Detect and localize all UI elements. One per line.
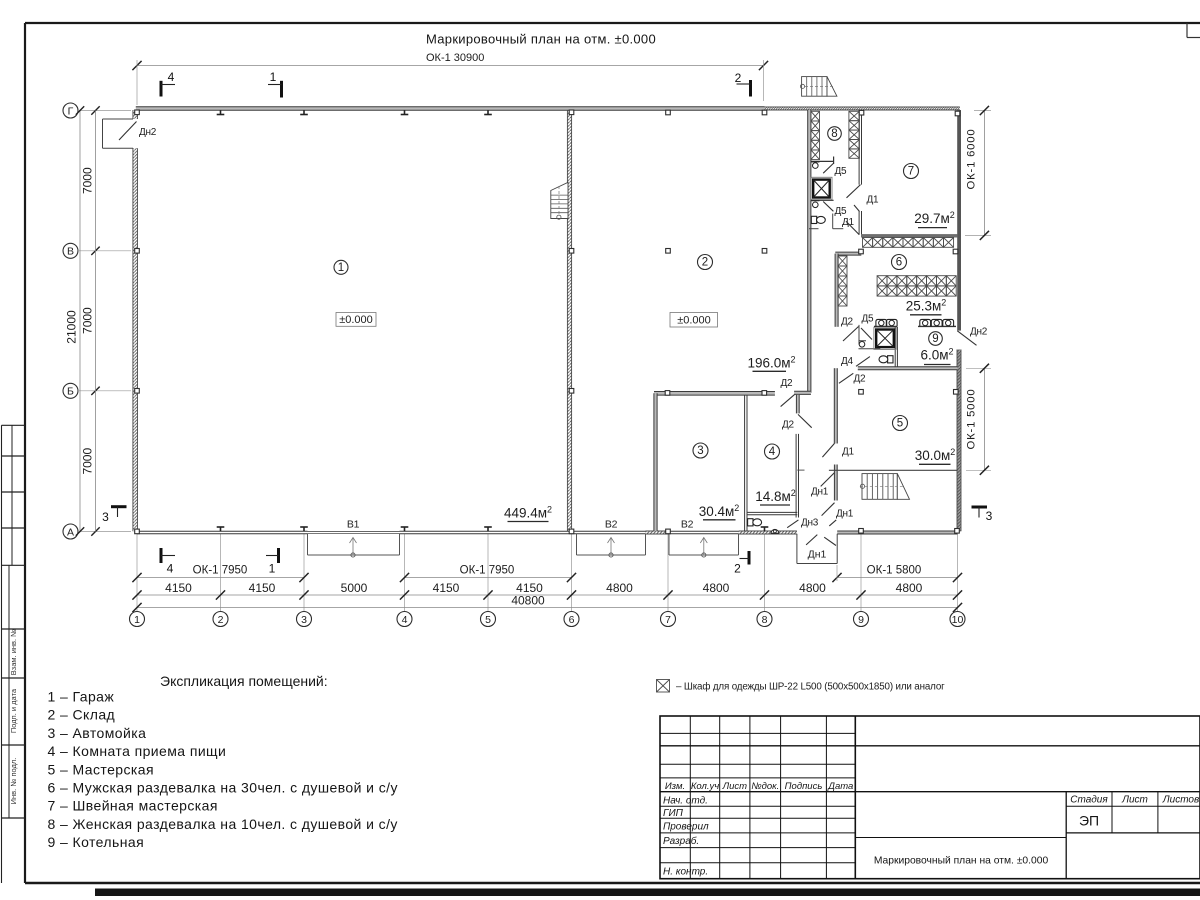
svg-text:7000: 7000 (81, 307, 95, 334)
svg-text:Д1: Д1 (842, 447, 854, 458)
svg-text:2: 2 (218, 614, 224, 626)
svg-text:Д2: Д2 (782, 420, 794, 431)
svg-text:5: 5 (485, 614, 491, 626)
svg-text:Дн2: Дн2 (970, 327, 988, 338)
svg-text:Кол.уч: Кол.уч (691, 781, 719, 792)
svg-text:7000: 7000 (81, 448, 95, 475)
svg-text:449.4м2: 449.4м2 (504, 505, 552, 521)
svg-text:2: 2 (735, 71, 742, 85)
svg-text:ОК-1 5000: ОК-1 5000 (966, 389, 978, 450)
svg-text:±0.000: ±0.000 (339, 314, 373, 326)
svg-text:4: 4 (168, 70, 175, 84)
svg-text:Нач. отд.: Нач. отд. (663, 796, 708, 807)
svg-text:Г: Г (68, 105, 74, 117)
svg-text:ОК-1 5800: ОК-1 5800 (867, 565, 922, 577)
svg-text:8 – Женская раздевалка на 10че: 8 – Женская раздевалка на 10чел. с душев… (48, 816, 398, 832)
svg-text:Д4: Д4 (841, 356, 853, 367)
svg-text:Дн1: Дн1 (836, 509, 854, 520)
svg-text:Дн2: Дн2 (139, 127, 157, 138)
svg-text:ОК-1 30900: ОК-1 30900 (426, 52, 484, 64)
svg-text:Подпись: Подпись (785, 781, 823, 792)
svg-text:3 – Автомойка: 3 – Автомойка (48, 725, 147, 741)
svg-text:Д1: Д1 (842, 217, 854, 228)
svg-text:7: 7 (665, 614, 671, 626)
svg-text:1: 1 (338, 262, 344, 274)
svg-text:Д2: Д2 (841, 317, 853, 328)
svg-text:– Шкаф для одежды ШР-22 L500 (: – Шкаф для одежды ШР-22 L500 (500х500х18… (676, 682, 945, 693)
svg-text:Разраб.: Разраб. (663, 835, 699, 847)
svg-text:Инв. № подл.: Инв. № подл. (9, 758, 18, 805)
svg-text:1: 1 (270, 70, 277, 84)
svg-text:ОК-1 7950: ОК-1 7950 (460, 565, 515, 577)
svg-text:3: 3 (102, 510, 109, 524)
svg-text:3: 3 (986, 509, 993, 523)
svg-text:3: 3 (697, 445, 703, 457)
svg-text:2: 2 (702, 257, 708, 269)
svg-text:4800: 4800 (799, 581, 826, 595)
svg-text:Н. контр.: Н. контр. (663, 867, 708, 878)
svg-text:Дн3: Дн3 (801, 518, 819, 529)
svg-text:3: 3 (301, 614, 307, 626)
svg-text:Лист: Лист (722, 781, 748, 792)
svg-text:1: 1 (134, 614, 140, 626)
svg-text:№док.: №док. (751, 781, 779, 792)
svg-text:Проверил: Проверил (663, 822, 709, 833)
svg-text:Дн1: Дн1 (811, 487, 829, 498)
svg-text:Д5: Д5 (835, 206, 847, 217)
svg-text:В2: В2 (605, 519, 618, 531)
svg-text:5000: 5000 (341, 581, 368, 595)
svg-text:4150: 4150 (433, 581, 460, 595)
svg-text:ОК-1 7950: ОК-1 7950 (193, 565, 248, 577)
svg-text:Д2: Д2 (854, 374, 866, 385)
svg-text:ОК-1 6000: ОК-1 6000 (966, 129, 978, 190)
svg-text:2 – Склад: 2 – Склад (48, 707, 116, 723)
svg-text:Экспликация помещений:: Экспликация помещений: (160, 673, 328, 689)
svg-text:ЭП: ЭП (1079, 813, 1099, 829)
svg-text:30.0м2: 30.0м2 (915, 447, 956, 463)
svg-text:9: 9 (932, 333, 938, 345)
svg-text:В: В (67, 246, 74, 258)
svg-text:4 – Комната приема пищи: 4 – Комната приема пищи (48, 743, 227, 759)
svg-text:Д5: Д5 (862, 314, 874, 325)
svg-text:21000: 21000 (65, 310, 79, 344)
svg-text:8: 8 (831, 128, 837, 140)
svg-text:Маркировочный план на отм. ±0: Маркировочный план на отм. ±0.000 (426, 32, 656, 47)
svg-text:5 – Мастерская: 5 – Мастерская (48, 761, 154, 777)
svg-text:В1: В1 (347, 519, 360, 531)
svg-text:9 – Котельная: 9 – Котельная (48, 834, 145, 850)
svg-text:4150: 4150 (249, 581, 276, 595)
svg-text:4800: 4800 (703, 581, 730, 595)
svg-text:5: 5 (897, 418, 903, 430)
svg-text:6: 6 (896, 257, 902, 269)
svg-text:30.4м2: 30.4м2 (699, 503, 740, 519)
svg-text:40800: 40800 (511, 594, 545, 608)
svg-text:6: 6 (569, 614, 575, 626)
svg-text:1: 1 (269, 562, 276, 576)
svg-text:4150: 4150 (165, 581, 192, 595)
svg-text:Дн1: Дн1 (808, 549, 827, 561)
svg-text:Подп. и дата: Подп. и дата (9, 688, 18, 733)
svg-text:4: 4 (402, 614, 408, 626)
svg-text:Д2: Д2 (781, 378, 793, 389)
svg-text:4: 4 (167, 562, 174, 576)
svg-text:7 – Швейная мастерская: 7 – Швейная мастерская (48, 798, 218, 814)
svg-text:2: 2 (734, 562, 741, 576)
svg-text:6 – Мужская раздевалка на 30че: 6 – Мужская раздевалка на 30чел. с душев… (48, 780, 398, 796)
svg-text:Взам. инв. №: Взам. инв. № (9, 629, 18, 675)
svg-text:9: 9 (858, 614, 864, 626)
svg-text:Маркировочный план на отм. ±0.: Маркировочный план на отм. ±0.000 (874, 856, 1049, 867)
svg-text:25.3м2: 25.3м2 (906, 298, 947, 314)
svg-text:4: 4 (769, 446, 776, 458)
svg-text:1 – Гараж: 1 – Гараж (48, 689, 115, 705)
svg-text:8: 8 (762, 614, 768, 626)
svg-text:Стадия: Стадия (1070, 795, 1108, 806)
svg-text:Дата: Дата (827, 781, 853, 792)
svg-text:Изм.: Изм. (665, 781, 685, 792)
svg-text:Б: Б (67, 386, 74, 398)
svg-text:4800: 4800 (606, 581, 633, 595)
svg-text:Д5: Д5 (835, 166, 847, 177)
svg-text:7000: 7000 (81, 167, 95, 194)
svg-text:ГИП: ГИП (663, 808, 684, 819)
svg-text:29.7м2: 29.7м2 (914, 210, 955, 226)
svg-text:10: 10 (952, 614, 964, 626)
svg-text:Лист: Лист (1121, 795, 1148, 806)
svg-text:В2: В2 (681, 519, 694, 531)
svg-text:14.8м2: 14.8м2 (755, 488, 796, 504)
svg-text:Д1: Д1 (867, 195, 879, 206)
svg-text:Листов: Листов (1162, 795, 1199, 806)
svg-text:А: А (67, 526, 74, 538)
svg-text:196.0м2: 196.0м2 (747, 355, 795, 371)
svg-text:±0.000: ±0.000 (677, 315, 711, 327)
svg-text:4800: 4800 (896, 581, 923, 595)
svg-text:7: 7 (908, 166, 914, 178)
